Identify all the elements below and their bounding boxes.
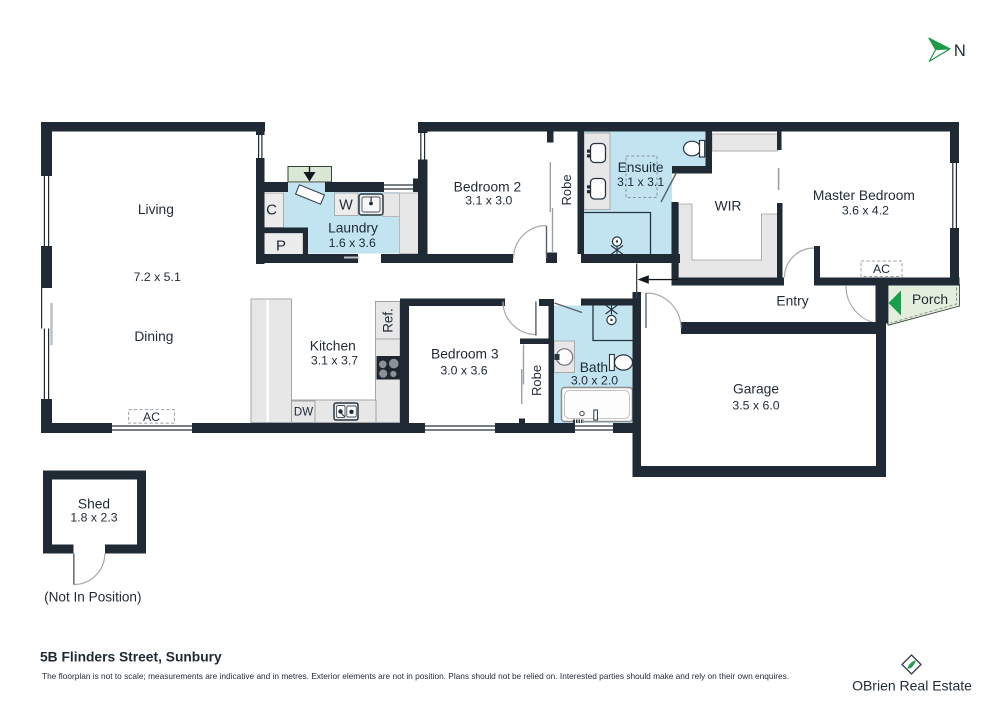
svg-text:Shed: Shed: [78, 496, 110, 511]
svg-text:3.0 x 3.6: 3.0 x 3.6: [440, 363, 487, 377]
svg-text:3.5 x 6.0: 3.5 x 6.0: [732, 398, 779, 412]
svg-text:Dining: Dining: [134, 329, 173, 344]
svg-text:AC: AC: [143, 410, 160, 424]
svg-text:N: N: [954, 42, 966, 60]
svg-text:1.6 x 3.6: 1.6 x 3.6: [329, 236, 376, 250]
svg-text:Robe: Robe: [529, 365, 544, 396]
svg-text:Robe: Robe: [559, 174, 574, 205]
svg-text:Entry: Entry: [776, 294, 808, 309]
svg-text:Garage: Garage: [733, 382, 779, 397]
svg-text:(Not In Position): (Not In Position): [44, 590, 141, 605]
svg-text:7.2 x 5.1: 7.2 x 5.1: [134, 270, 181, 284]
svg-text:3.1 x 3.0: 3.1 x 3.0: [465, 193, 512, 207]
svg-text:C: C: [266, 202, 277, 219]
svg-text:Porch: Porch: [912, 292, 948, 307]
svg-text:AC: AC: [873, 262, 890, 276]
svg-text:OBrien Real Estate: OBrien Real Estate: [852, 678, 972, 694]
svg-text:WIR: WIR: [715, 199, 742, 214]
svg-text:W: W: [339, 198, 353, 214]
svg-text:DW: DW: [294, 407, 313, 419]
svg-text:Kitchen: Kitchen: [310, 338, 356, 353]
svg-text:3.1 x 3.7: 3.1 x 3.7: [311, 354, 358, 368]
svg-text:3.6 x 4.2: 3.6 x 4.2: [842, 203, 889, 217]
svg-text:Laundry: Laundry: [328, 220, 378, 235]
svg-text:Bedroom 2: Bedroom 2: [454, 179, 522, 194]
svg-text:Living: Living: [138, 202, 174, 217]
svg-text:5B Flinders Street, Sunbury: 5B Flinders Street, Sunbury: [40, 650, 222, 665]
svg-text:1.8 x 2.3: 1.8 x 2.3: [70, 510, 117, 524]
svg-text:3.0 x 2.0: 3.0 x 2.0: [571, 374, 618, 388]
svg-text:Master Bedroom: Master Bedroom: [813, 188, 915, 203]
svg-text:P: P: [276, 237, 286, 254]
svg-text:Ref.: Ref.: [381, 308, 396, 333]
svg-text:Bedroom 3: Bedroom 3: [431, 347, 499, 362]
svg-text:The floorplan is not to scale;: The floorplan is not to scale; measureme…: [42, 671, 789, 681]
svg-text:Ensuite: Ensuite: [618, 160, 664, 175]
svg-text:3.1 x 3.1: 3.1 x 3.1: [617, 175, 664, 189]
